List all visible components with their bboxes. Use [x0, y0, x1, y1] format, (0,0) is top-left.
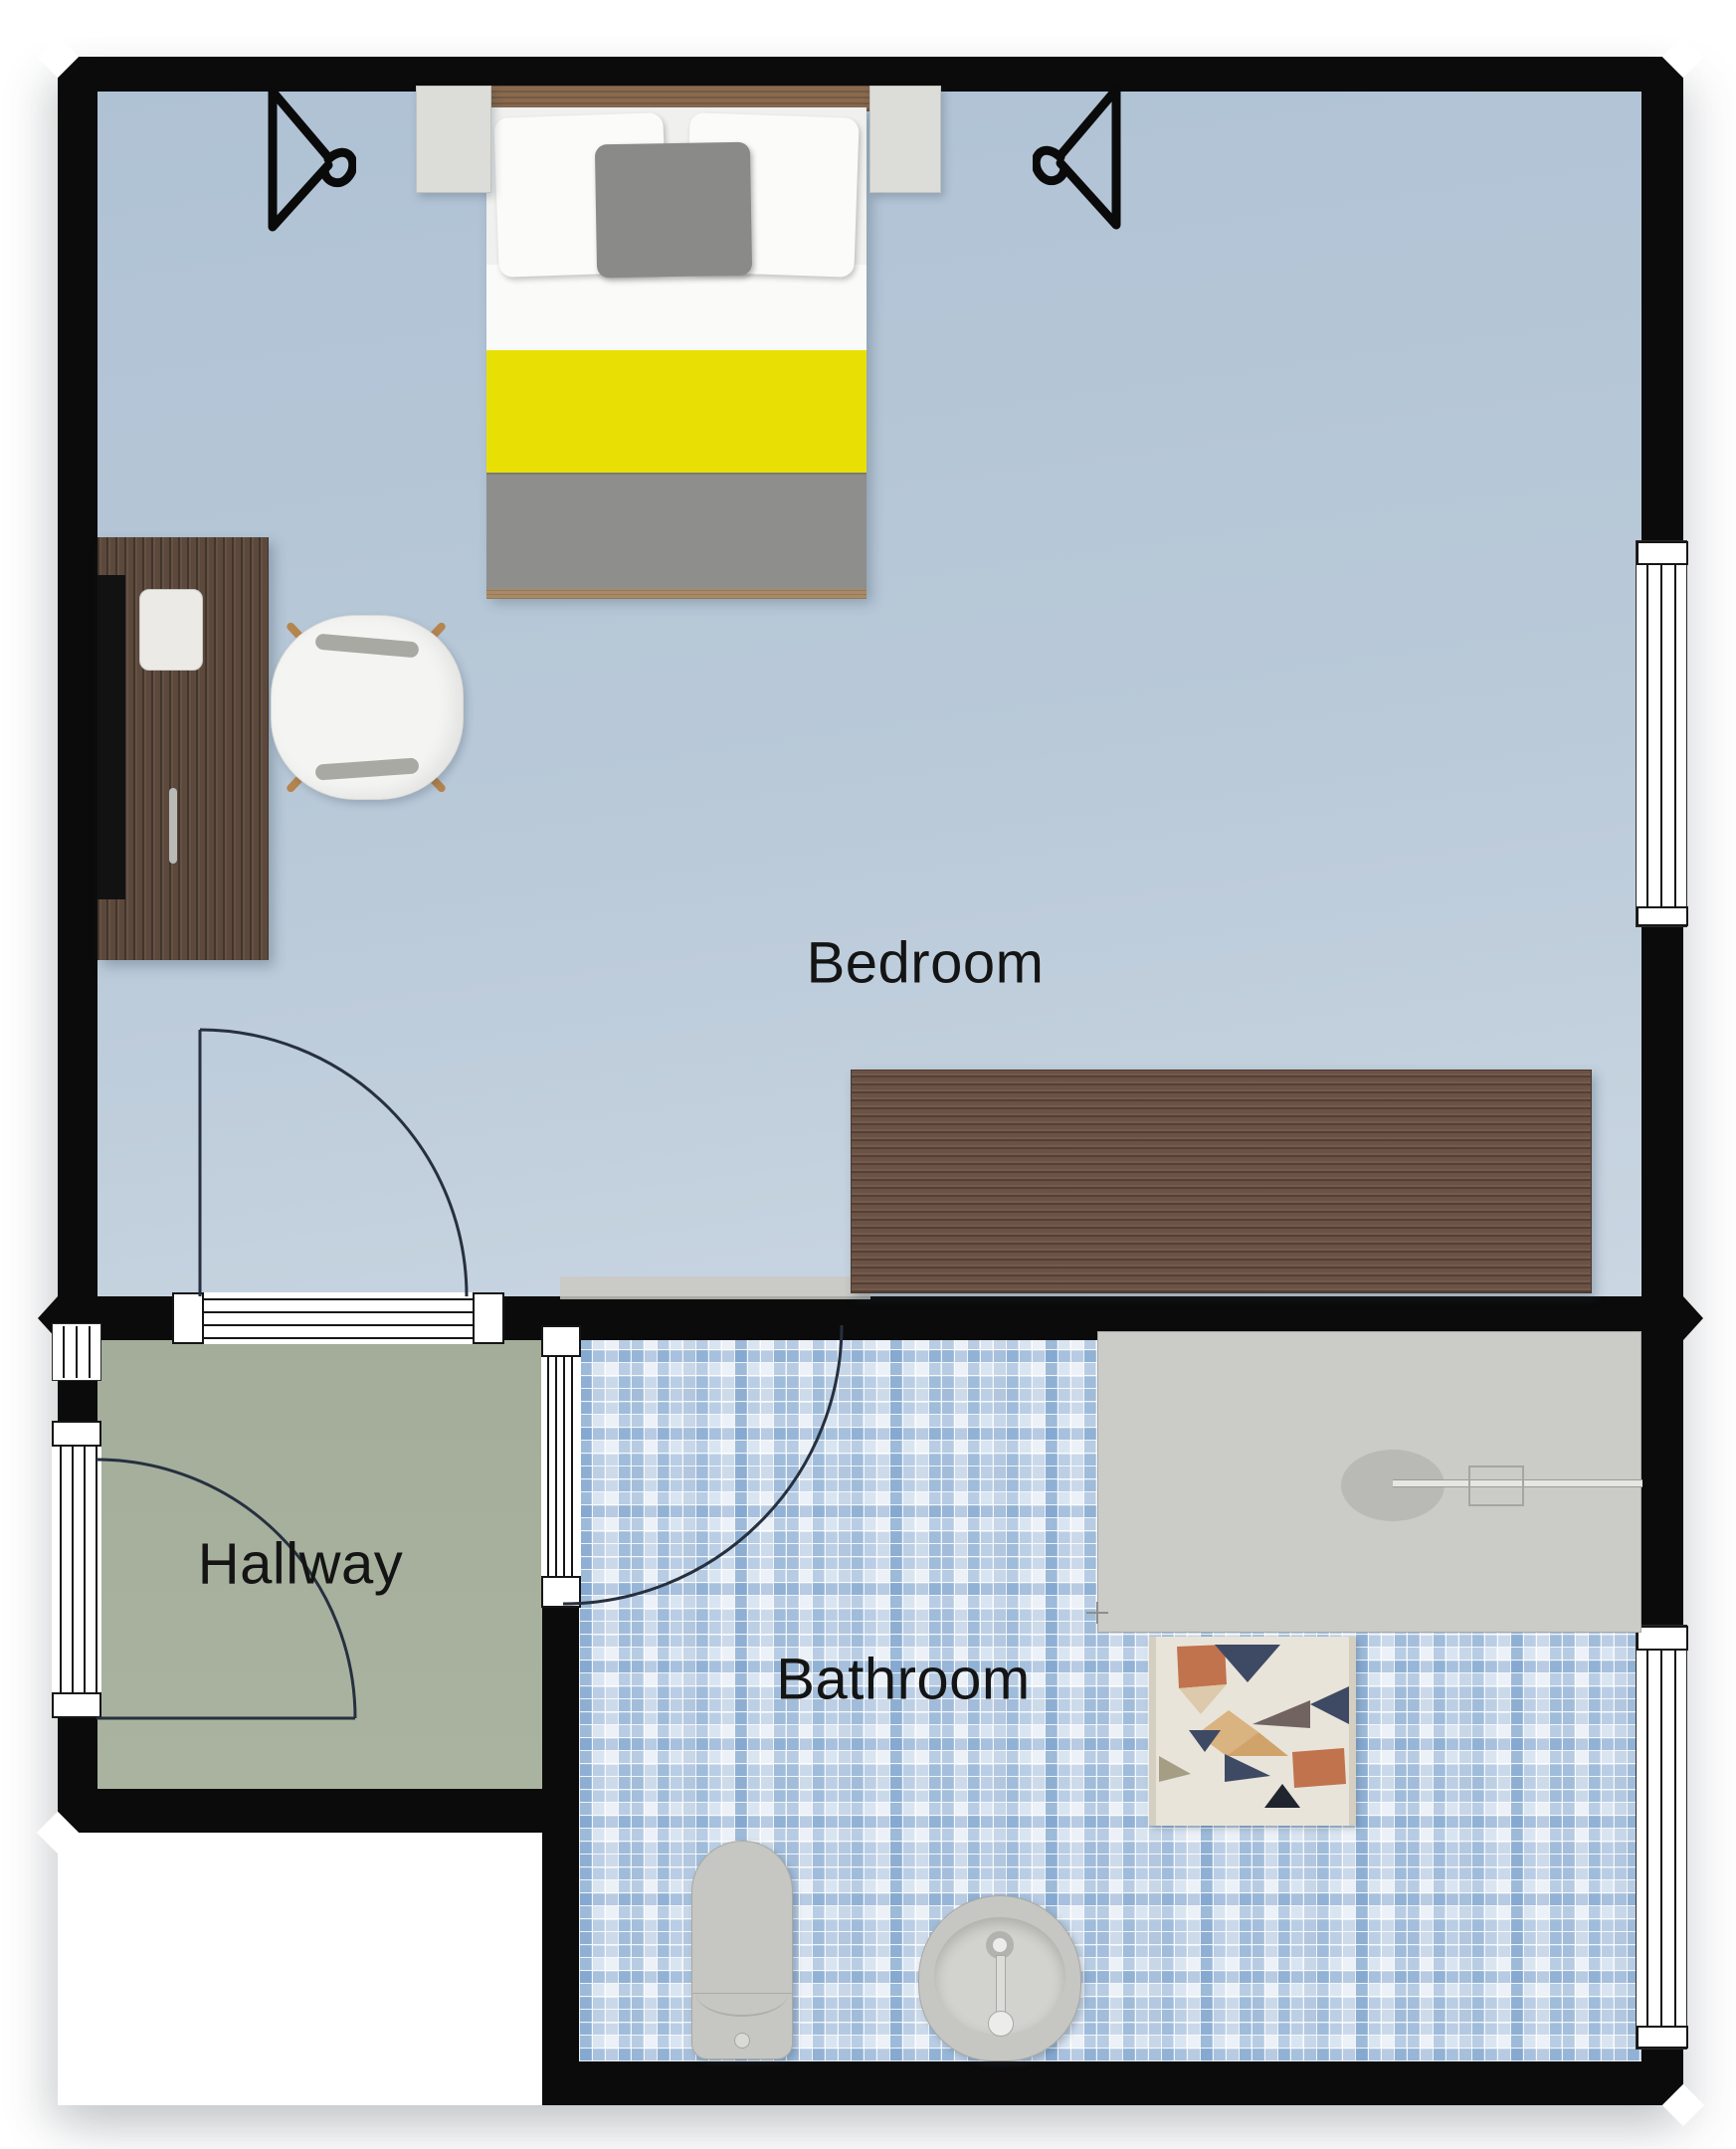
- door-swings-layer: [0, 0, 1736, 2149]
- bedroom-label: Bedroom: [807, 930, 1045, 997]
- bathroom-door-swing[interactable]: [563, 1325, 842, 1604]
- hallway-label: Hallway: [198, 1531, 404, 1598]
- bedroom-door-swing[interactable]: [200, 1030, 467, 1296]
- bathroom-label: Bathroom: [776, 1647, 1030, 1713]
- floor-plan: Bedroom Hallway Bathroom: [0, 0, 1736, 2149]
